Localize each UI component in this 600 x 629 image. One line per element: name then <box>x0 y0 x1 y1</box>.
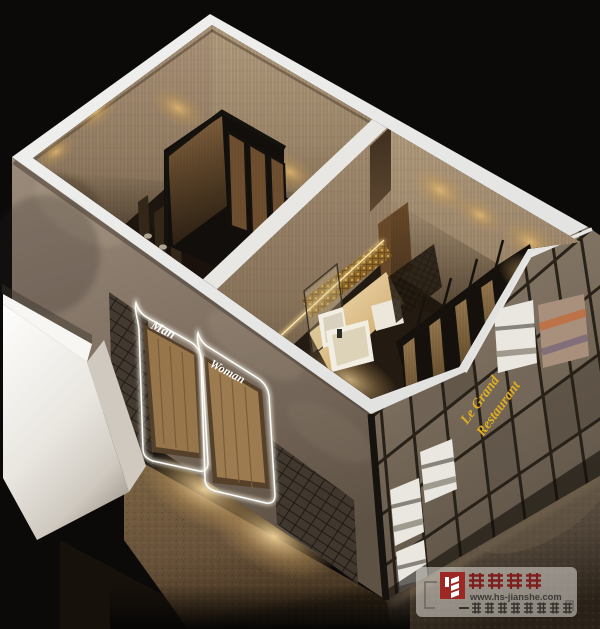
svg-text:www.hs-jianshe.com: www.hs-jianshe.com <box>469 592 562 602</box>
